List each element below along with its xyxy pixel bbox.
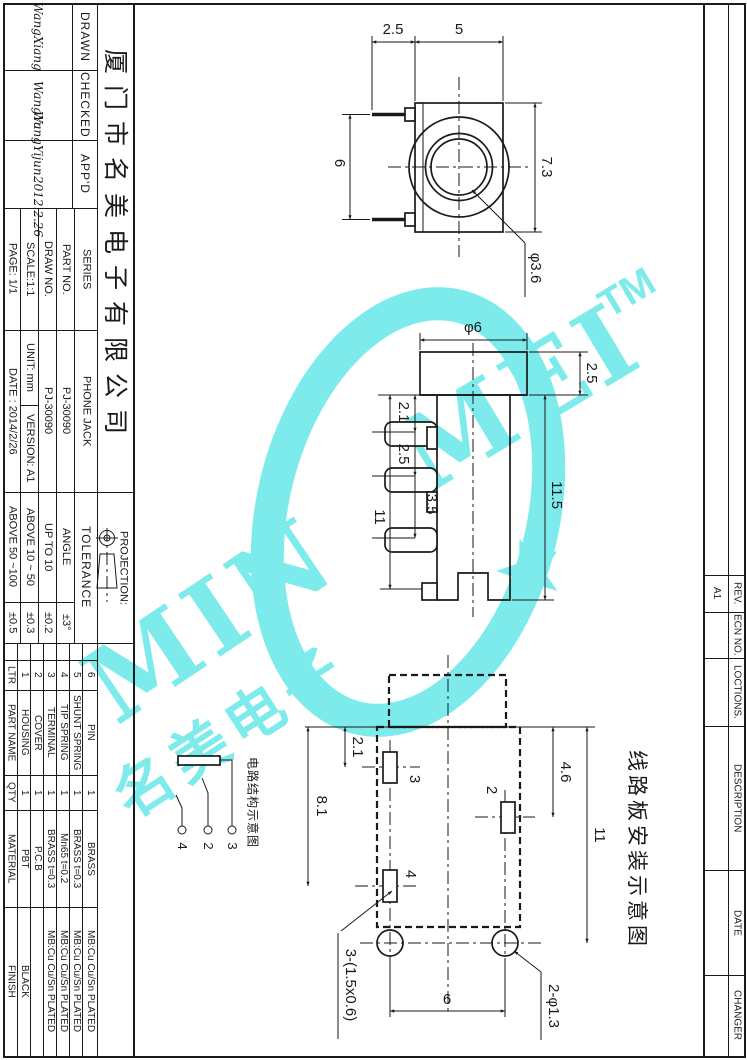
part-ltr: 2 [30,660,43,690]
part-material: Mn65 t=0.2 [56,810,69,907]
part-finish: MB:Cu Cu/Sn PLATED [82,907,97,1056]
part-finish: MB:Cu Cu/Sn PLATED [69,907,82,1056]
grid-line [133,3,135,1056]
dim-2-5: 2.5 [383,21,404,38]
part-finish: BLACK [17,907,30,1056]
part-material: P.C.B [30,810,43,907]
company-name: 厦门市名美电子有限公司 [97,3,133,492]
part-qty: 1 [69,775,82,810]
dim-2-5b: 2.5 [395,444,412,465]
dim-3-5: 3.5 [423,494,440,515]
rev-label: REV. [728,575,744,612]
part-qty: 1 [82,775,97,810]
hole-note: 2-φ1.3 [545,984,562,1028]
tolerance-range: UP TO 10 [38,492,56,602]
part-qty: 1 [30,775,43,810]
part-name: SHUNT SPRING [69,690,82,775]
checked-label: CHECKED [72,70,97,140]
part-name: HOUSING [17,690,30,775]
terminal-tab [385,468,437,492]
approved-signature-name: WangYijun [31,111,44,176]
pin-number-4: 4 [402,870,419,878]
slot-3 [383,752,397,783]
side-view: φ6 2.5 11.5 2.1 2.5 3.5 11 [330,295,600,625]
part-ltr: 5 [69,660,82,690]
terminal-tab [385,528,437,552]
circuit-caption: 电路结构示意图 [242,750,262,855]
tolerance-value: ±0.2 [38,602,56,643]
circuit-pin-4: 4 [175,842,190,849]
rev-value: A1 [703,575,728,612]
tolerance-range: ABOVE 50 ~100 [3,492,20,602]
dim-11: 11 [591,827,608,843]
tolerance-range: ABOVE 10 ~ 50 [20,492,38,602]
parts-header-name: PART NAME [3,690,17,775]
date-value: DATE : 2014/2/26 [3,330,20,492]
pcb-layout-view: 2.1 8.1 4.6 11 6 3-(1.5x0.6) 2-φ1.3 3 2 … [295,640,625,1045]
parts-header-material: MATERIAL [3,810,17,907]
dim-11-5: 11.5 [548,481,565,509]
dim-hole: φ3.6 [527,253,544,284]
tolerance-range: ANGLE [56,492,74,602]
unit-value: UNIT: mm [20,330,38,405]
slot-note: 3-(1.5x0.6) [342,949,359,1022]
part-ltr: 6 [82,660,97,690]
grid-line [703,3,705,1056]
dim-8-1: 8.1 [313,796,330,817]
tolerance-value: ±0.3 [20,602,38,643]
parts-header-ltr: LTR [3,660,17,690]
dim-4-6: 4.6 [557,762,574,783]
tolerance-label: TOLERANCE [74,492,97,643]
series-value: PHONE JACK [74,330,97,492]
tolerance-value: ±0.5 [3,602,20,643]
pin-number-3: 3 [406,775,423,783]
part-qty: 1 [56,775,69,810]
dim-6: 6 [443,991,451,1008]
pin-top [405,108,415,121]
slot-2 [501,802,515,833]
tip-spring-contact [178,756,220,765]
slot-4 [383,870,397,902]
dim-2-1: 2.1 [395,402,412,423]
part-finish: MB:Cu Cu/Sn PLATED [56,907,69,1056]
part-material: BRASS t=0.3 [43,810,56,907]
part-material: BRASS t=0.3 [69,810,82,907]
projection-label: PROJECTION: [112,492,133,643]
dim-7-3: 7.3 [538,157,555,178]
dim-d6: φ6 [464,319,482,336]
part-material: BRASS [82,810,97,907]
circuit-pin-2: 2 [201,842,216,849]
tolerance-value: ±3° [56,602,74,643]
draw-no-label: DRAW NO. [38,208,56,330]
dim-11: 11 [371,509,388,525]
approved-signature: WangYijun 2012.2.26 [3,140,72,208]
series-label: SERIES [74,208,97,330]
part-qty: 1 [17,775,30,810]
drawn-label: DRAWN [72,3,97,70]
part-ltr: 4 [56,660,69,690]
part-finish [30,907,43,1056]
part-qty: 1 [43,775,56,810]
date-label: DATE [728,870,744,975]
part-name: COVER [30,690,43,775]
ecn-label: ECN NO. [728,612,744,658]
dim-2-1: 2.1 [349,737,366,758]
part-ltr: 3 [43,660,56,690]
part-name: TERMINAL [43,690,56,775]
part-name: TIP SPRING [56,690,69,775]
drawing-sheet: MIN MEI TM 名美电子 WangXiang WangYu WangYij… [0,0,747,1060]
pin-bottom [405,213,415,226]
grid-line [3,643,134,644]
page-field: PAGE: 1/1 [3,208,20,330]
part-material: PBT [17,810,30,907]
loctions-label: LOCTIONS. [728,658,744,726]
parts-header-finish: FINISH [3,907,17,1056]
scale-field: SCALE:1:1 [20,208,38,330]
draw-no-value: PJ-30090 [38,330,56,492]
part-finish: MB:Cu Cu/Sn PLATED [43,907,56,1056]
approved-label: APP'D [72,140,97,208]
description-label: DESCRIPTION [728,726,744,870]
version-value: VERSION: A1 [20,405,38,492]
dim-5: 5 [455,21,463,38]
drawn-signature: WangXiang [3,3,72,70]
pcb-caption: 线路板安装示意图 [620,740,652,960]
front-view: 2.5 5 6 7.3 φ3.6 [330,15,580,305]
part-ltr: 1 [17,660,30,690]
parts-header-qty: QTY [3,775,17,810]
part-no-value: PJ-30090 [56,330,74,492]
dim-2-5: 2.5 [583,363,600,384]
dim-6: 6 [331,159,348,167]
part-name: PIN [82,690,97,775]
circuit-pin-3: 3 [225,842,240,849]
part-no-label: PART NO. [56,208,74,330]
changer-label: CHANGER [728,975,744,1056]
pin-number-2: 2 [483,786,500,794]
